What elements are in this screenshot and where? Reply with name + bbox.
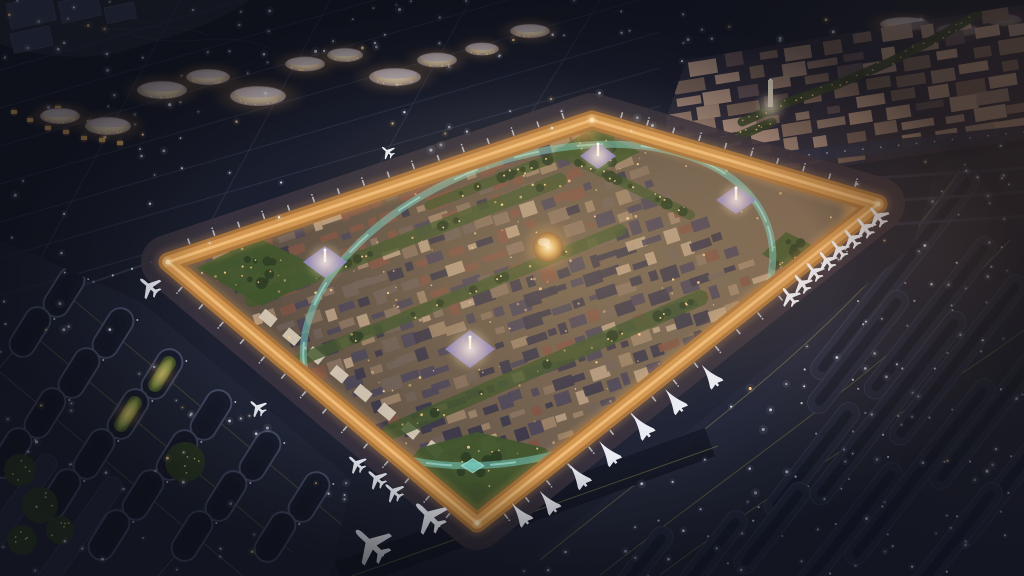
airport-night-render: Night aerial rendering of a large square… <box>0 0 1024 576</box>
scene-svg: Night aerial rendering of a large square… <box>0 0 1024 576</box>
vignette <box>0 0 1024 576</box>
